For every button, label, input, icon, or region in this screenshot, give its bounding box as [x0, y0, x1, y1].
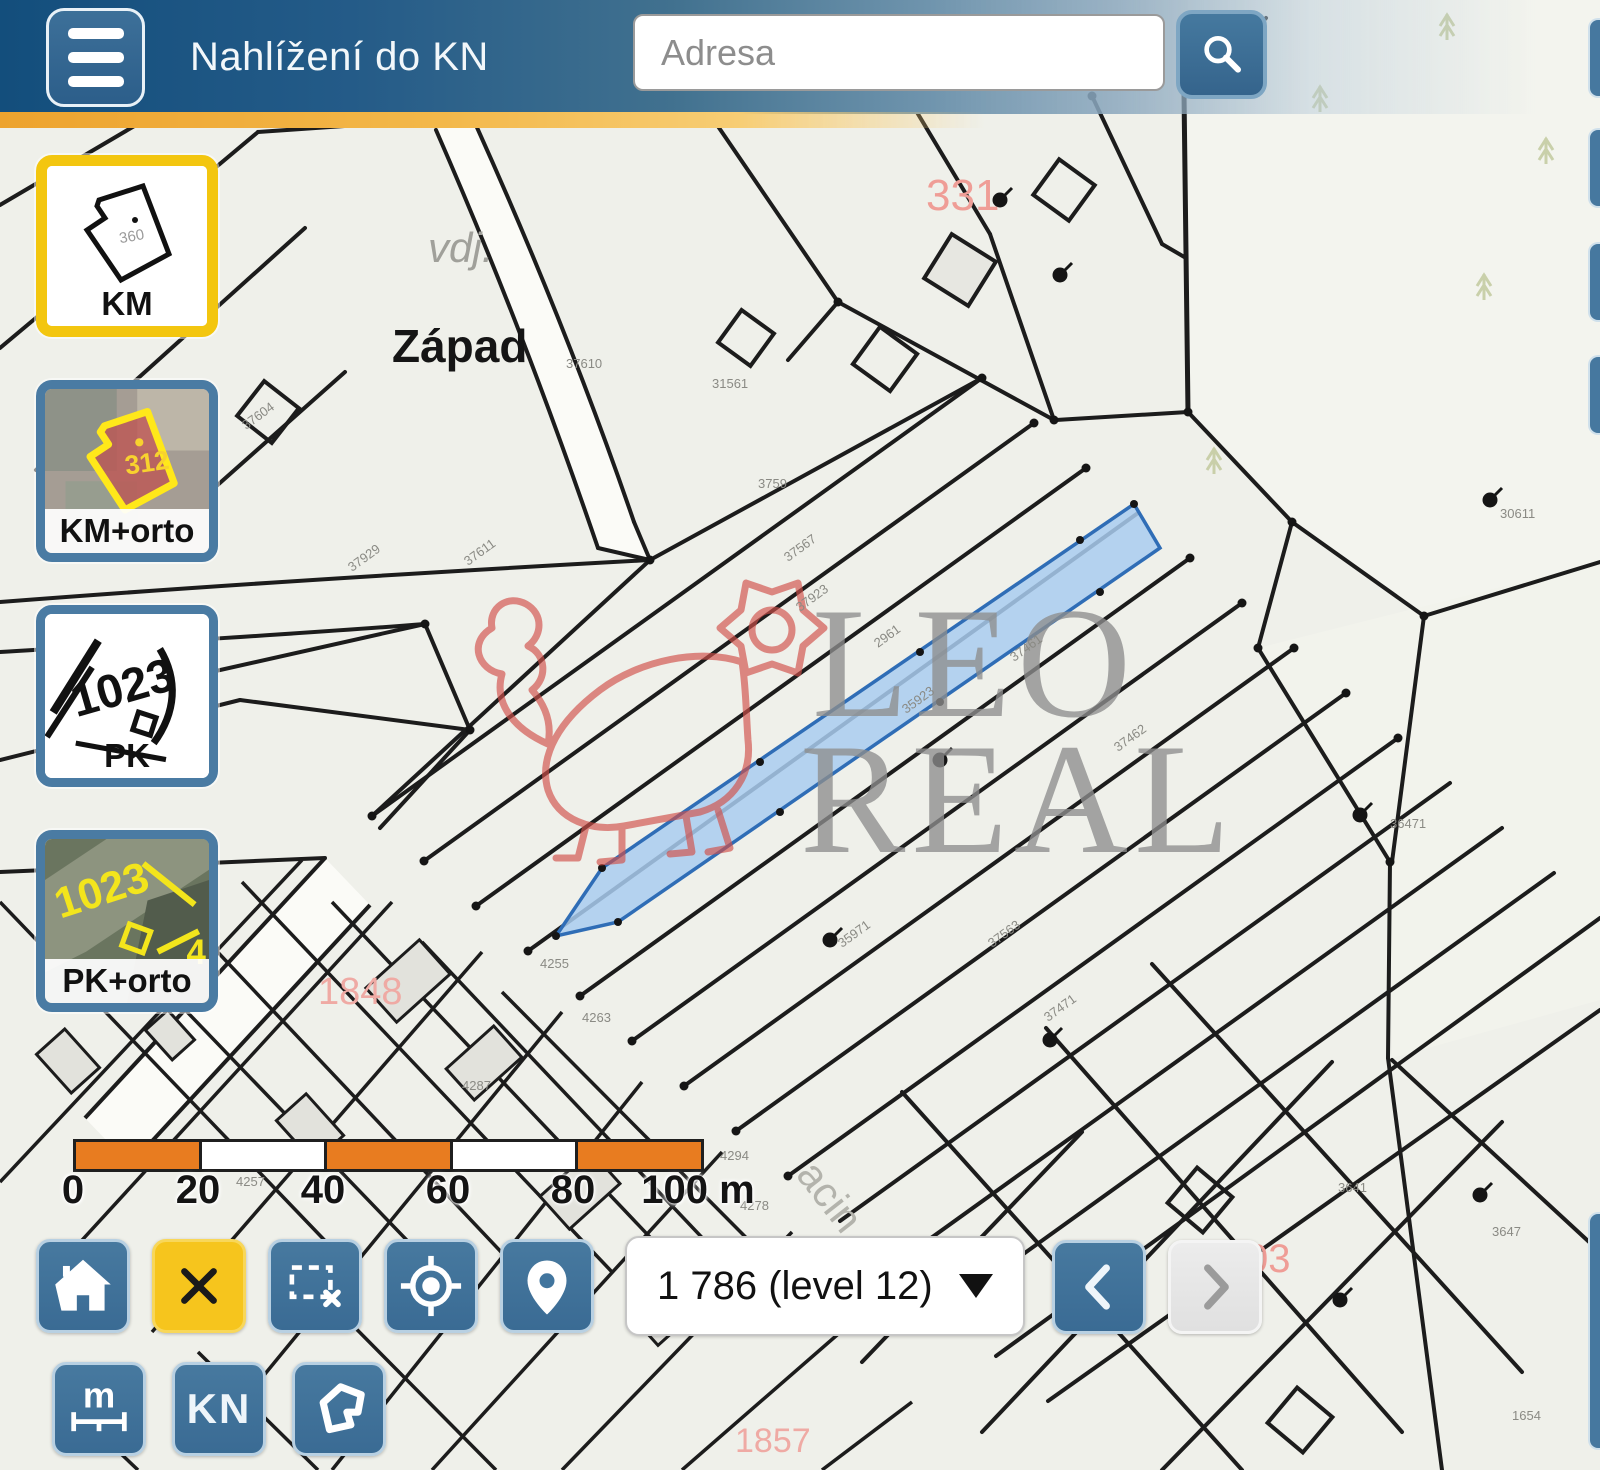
close-x-icon [164, 1251, 234, 1321]
layer-label: KM+orto [45, 509, 209, 553]
home-icon [46, 1249, 120, 1323]
home-button[interactable] [36, 1239, 130, 1333]
layer-label: PK [45, 734, 209, 778]
map-text-label: 30611 [1500, 506, 1535, 521]
chevron-right-icon [1180, 1252, 1250, 1322]
map-text-label: 36471 [1390, 816, 1426, 831]
map-text-label: 4294 [720, 1148, 749, 1163]
close-selection-button[interactable] [152, 1239, 246, 1333]
kn-button[interactable]: KN [172, 1362, 266, 1456]
scale-label: 100 m [641, 1168, 754, 1213]
map-text-label: 1654 [1512, 1408, 1541, 1423]
scale-label: 20 [176, 1168, 221, 1213]
scale-label: 60 [426, 1168, 471, 1213]
search-button[interactable] [1176, 10, 1267, 99]
header-accent-strip [0, 112, 985, 128]
map-text-label: 3641 [1338, 1180, 1367, 1195]
edge-docked-button[interactable] [1588, 242, 1600, 322]
history-forward-button[interactable] [1168, 1240, 1262, 1334]
map-text-label: 4263 [582, 1010, 611, 1025]
zoom-level-select[interactable]: 1 786 (level 12) [625, 1236, 1025, 1336]
map-text-label: 3759 [758, 476, 787, 491]
layer-button-pk[interactable]: 1023 PK [36, 605, 218, 787]
layer-button-km-orto[interactable]: 312 KM+orto [36, 380, 218, 562]
edge-docked-button[interactable] [1588, 1212, 1600, 1450]
svg-text:312: 312 [123, 445, 171, 481]
map-text-label: 37610 [566, 356, 602, 371]
edge-docked-button[interactable] [1588, 18, 1600, 98]
scale-bar [73, 1139, 704, 1172]
chevron-left-icon [1064, 1252, 1134, 1322]
zoom-level-value: 1 786 (level 12) [657, 1264, 933, 1309]
locate-icon [393, 1248, 469, 1324]
rectangle-select-button[interactable] [268, 1239, 362, 1333]
measure-button[interactable]: m [52, 1362, 146, 1456]
layer-label: PK+orto [45, 959, 209, 1003]
map-text-label: 4287 [462, 1078, 491, 1093]
map-text-label: 1857 [735, 1422, 811, 1460]
polygon-button[interactable] [292, 1362, 386, 1456]
menu-button[interactable] [46, 8, 145, 107]
chevron-down-icon [959, 1274, 993, 1298]
search-input[interactable] [633, 14, 1165, 91]
edge-docked-button[interactable] [1588, 355, 1600, 435]
pin-button[interactable] [500, 1239, 594, 1333]
map-text-label: 1848 [318, 971, 403, 1013]
search-icon [1190, 23, 1254, 87]
app-window: LEO REAL Západvdj.3310318481857acin37929… [0, 0, 1600, 1470]
locate-button[interactable] [384, 1239, 478, 1333]
kn-label: KN [187, 1385, 252, 1433]
layer-label: KM [47, 282, 207, 326]
map-text-label: 4257 [236, 1174, 265, 1189]
map-text-label: 4255 [540, 956, 569, 971]
page-title: Nahlížení do KN [190, 0, 489, 114]
polygon-icon [301, 1371, 377, 1447]
map-text-label: 331 [926, 171, 999, 220]
layer-button-pk-orto[interactable]: 1023 4 PK+orto [36, 830, 218, 1012]
watermark-line2: REAL [800, 712, 1237, 887]
edge-docked-button[interactable] [1588, 128, 1600, 208]
map-pin-icon [511, 1250, 583, 1322]
selection-rect-icon [278, 1249, 352, 1323]
svg-text:m: m [83, 1374, 115, 1415]
measure-icon: m [61, 1371, 137, 1447]
scale-label: 0 [62, 1168, 84, 1213]
layer-button-km[interactable]: 360 KM [36, 155, 218, 337]
scale-label: 80 [551, 1168, 596, 1213]
scale-label: 40 [301, 1168, 346, 1213]
history-back-button[interactable] [1052, 1240, 1146, 1334]
map-text-label: vdj. [428, 224, 493, 271]
map-text-label: 31561 [712, 376, 748, 391]
map-text-label: 3647 [1492, 1224, 1521, 1239]
map-text-label: Západ [392, 320, 527, 372]
